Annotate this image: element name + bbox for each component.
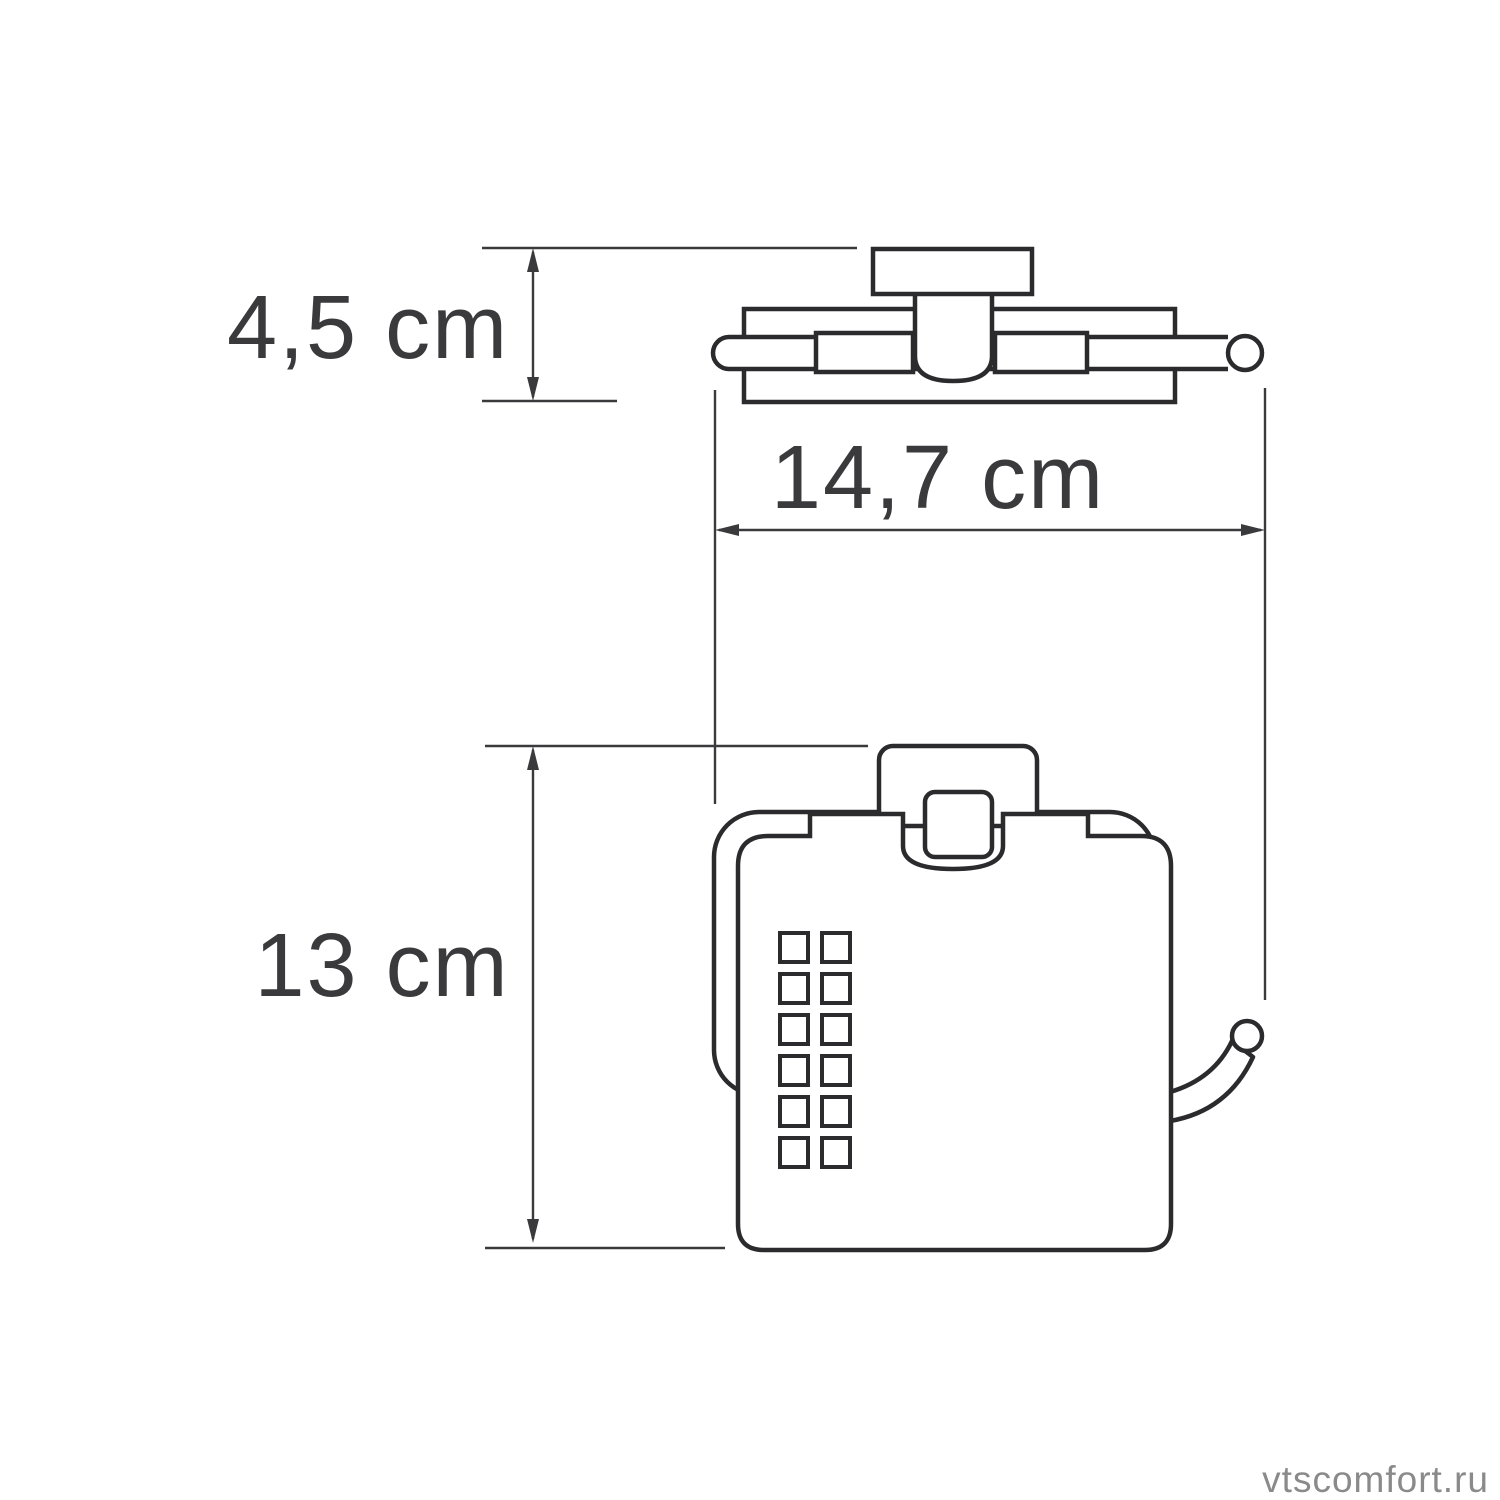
top-view-left-block <box>816 333 913 372</box>
holder-top-view <box>713 249 1262 402</box>
top-view-knob <box>873 249 1032 294</box>
top-view-right-block <box>995 333 1087 372</box>
holder-front-view <box>714 746 1262 1250</box>
dimension-width-label: 14,7 cm <box>771 428 1105 528</box>
front-view-hook-arm <box>1170 1041 1253 1121</box>
dimension-height-label: 13 cm <box>254 916 509 1016</box>
dimension-depth-label: 4,5 cm <box>227 278 509 378</box>
front-view-hook-ball <box>1232 1021 1262 1051</box>
top-view-stem-fill <box>915 290 992 381</box>
top-view-bar-end-ball <box>1228 336 1262 370</box>
front-view-latch-button <box>925 792 992 857</box>
dimension-diagram: 4,5 cm 14,7 cm 13 cm vtscomfort.ru <box>0 0 1500 1500</box>
watermark: vtscomfort.ru <box>1262 1459 1489 1500</box>
